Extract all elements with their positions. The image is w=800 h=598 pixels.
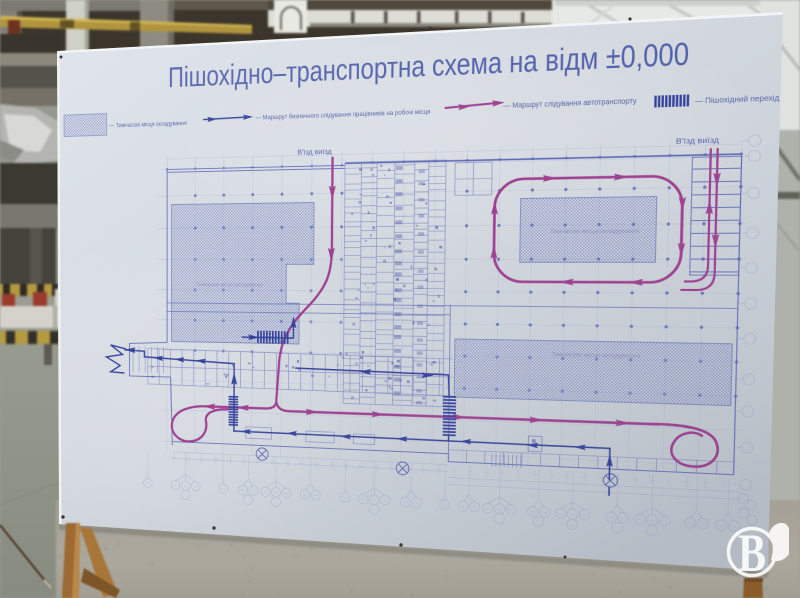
svg-text:B: B	[738, 524, 766, 583]
